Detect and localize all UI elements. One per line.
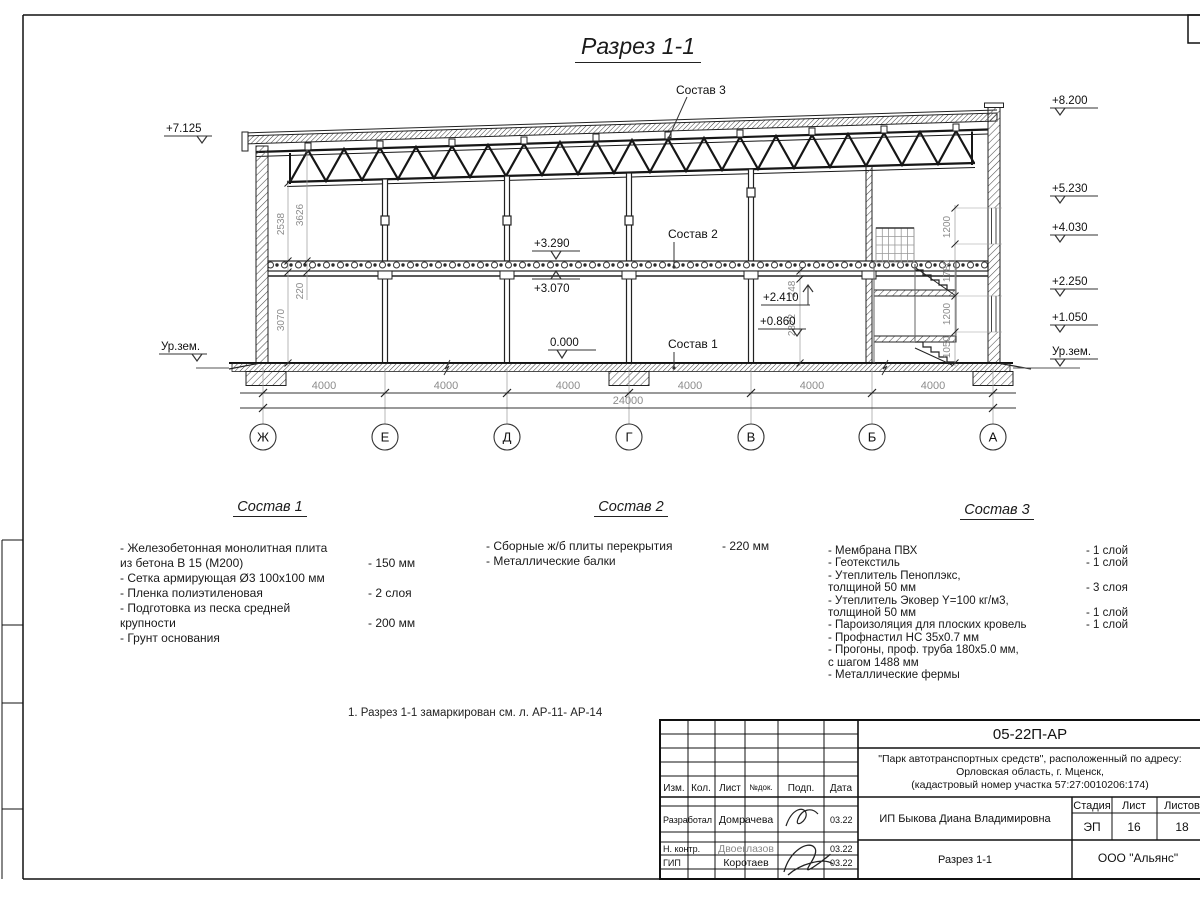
elev-slab-bottom: +3.070 bbox=[532, 271, 580, 295]
span-dim: 4000 bbox=[921, 380, 945, 392]
list-item: - Железобетонная монолитная плита из бет… bbox=[120, 541, 430, 571]
elev-right-1: +5.230 bbox=[1050, 183, 1098, 203]
elev-right-2: +4.030 bbox=[1050, 222, 1098, 242]
list-item: - Пленка полиэтиленовая- 2 слоя bbox=[120, 586, 430, 601]
tb-stage-value: ЭП bbox=[1083, 820, 1100, 834]
svg-text:+0.860: +0.860 bbox=[760, 316, 796, 328]
total-dim: 24000 bbox=[613, 395, 644, 407]
elev-right-3: +2.250 bbox=[1050, 276, 1098, 296]
drawing-sheet: 4000 4000 4000 4000 4000 4000 24000 Ж Е … bbox=[0, 0, 1200, 900]
list-item: - Прогоны, проф. труба 180х5.0 мм, с шаг… bbox=[828, 644, 1148, 669]
section-drawing-canvas: 4000 4000 4000 4000 4000 4000 24000 Ж Е … bbox=[0, 0, 1200, 900]
svg-text:+5.230: +5.230 bbox=[1052, 183, 1088, 195]
vdim: 3070 bbox=[276, 308, 287, 331]
list-item: - Грунт основания bbox=[120, 631, 430, 646]
window-lower bbox=[989, 296, 1000, 332]
tb-role: Н. контр. bbox=[663, 844, 700, 854]
vdim: 1780 bbox=[942, 259, 953, 282]
tb-project-line3: (кадастровый номер участка 57:27:0010206… bbox=[911, 779, 1148, 791]
svg-text:+3.070: +3.070 bbox=[534, 283, 570, 295]
tb-sheet-value: 16 bbox=[1127, 820, 1141, 834]
tb-company: ООО "Альянс" bbox=[1098, 851, 1178, 865]
elev-left-top: +7.125 bbox=[164, 123, 212, 143]
vdim: 220 bbox=[295, 282, 306, 299]
tb-project-line1: "Парк автотранспортных средств", располо… bbox=[878, 753, 1181, 765]
composition2-title-wrap: Состав 2 bbox=[486, 498, 776, 517]
leader-sostav1: Состав 1 bbox=[668, 337, 718, 351]
tb-sheet-label: Лист bbox=[1122, 800, 1146, 812]
list-item: - Пароизоляция для плоских кровель- 1 сл… bbox=[828, 619, 1148, 631]
splice-plate bbox=[381, 216, 389, 225]
title-block: Изм. Кол. Лист №док. Подп. Дата Разработ… bbox=[660, 720, 1200, 879]
svg-text:+2.250: +2.250 bbox=[1052, 276, 1088, 288]
tb-stage-label: Стадия bbox=[1073, 800, 1111, 812]
span-dim: 4000 bbox=[556, 380, 580, 392]
vdim: 2538 bbox=[276, 212, 287, 235]
tb-header-kol: Кол. bbox=[691, 783, 711, 794]
vdim: 1200 bbox=[942, 302, 953, 325]
right-wall bbox=[985, 103, 1004, 363]
axis-label: В bbox=[747, 430, 756, 445]
vdim: 1050 bbox=[942, 335, 953, 358]
tb-role: ГИП bbox=[663, 858, 681, 868]
tb-name: Домрачева bbox=[719, 814, 774, 826]
vdim: 1200 bbox=[942, 215, 953, 238]
list-item: - Металлические балки bbox=[486, 554, 786, 569]
tb-header-izm: Изм. bbox=[663, 783, 684, 794]
tb-sheet-title: Разрез 1-1 bbox=[938, 854, 992, 866]
axis-label: Д bbox=[503, 430, 512, 445]
frame-corner-box bbox=[1188, 15, 1200, 43]
window-upper bbox=[989, 208, 1000, 244]
tb-date: 03.22 bbox=[830, 815, 853, 825]
axis-bubbles: Ж Е Д Г В Б А bbox=[250, 424, 1006, 450]
splice-plate bbox=[625, 216, 633, 225]
span-dim: 4000 bbox=[434, 380, 458, 392]
list-item: - Сборные ж/б плиты перекрытия- 220 мм bbox=[486, 539, 786, 554]
splice-plate bbox=[747, 188, 755, 197]
elev-ground-right: Ур.зем. bbox=[1050, 346, 1098, 366]
page-title-wrap: Разрез 1-1 bbox=[538, 33, 738, 63]
splice-plate bbox=[503, 216, 511, 225]
tb-header-ndok: №док. bbox=[749, 783, 772, 792]
elev-right-top: +8.200 bbox=[1050, 95, 1098, 115]
page-title: Разрез 1-1 bbox=[575, 33, 701, 63]
leader-sostav3: Состав 3 bbox=[676, 83, 726, 97]
composition1-title-wrap: Состав 1 bbox=[120, 498, 420, 517]
tb-header-data: Дата bbox=[830, 783, 853, 794]
list-item: - Геотекстиль- 1 слой bbox=[828, 557, 1148, 569]
tb-name: Двоеглазов bbox=[718, 843, 774, 855]
composition3-list: - Мембрана ПВХ- 1 слой - Геотекстиль- 1 … bbox=[828, 545, 1148, 681]
svg-text:+1.050: +1.050 bbox=[1052, 312, 1088, 324]
composition2-title: Состав 2 bbox=[594, 499, 667, 517]
composition1-list: - Железобетонная монолитная плита из бет… bbox=[120, 541, 430, 646]
span-dim: 4000 bbox=[678, 380, 702, 392]
svg-text:+4.030: +4.030 bbox=[1052, 222, 1088, 234]
stair-railing bbox=[876, 228, 914, 262]
drawing-note: 1. Разрез 1-1 замаркирован см. л. АР-11-… bbox=[348, 707, 602, 719]
axis-label: Г bbox=[625, 430, 632, 445]
svg-text:+2.410: +2.410 bbox=[763, 292, 799, 304]
tb-header-podp: Подп. bbox=[788, 783, 815, 794]
composition1-title: Состав 1 bbox=[233, 499, 306, 517]
svg-text:Ур.зем.: Ур.зем. bbox=[161, 341, 200, 353]
svg-text:0.000: 0.000 bbox=[550, 337, 579, 349]
tb-client: ИП Быкова Диана Владимировна bbox=[879, 813, 1051, 825]
elev-ground-left: Ур.зем. bbox=[159, 341, 207, 361]
list-item: - Металлические фермы bbox=[828, 669, 1148, 681]
left-wall bbox=[256, 146, 268, 363]
tb-project-line2: Орловская область, г. Мценск, bbox=[956, 766, 1104, 778]
elev-right-4: +1.050 bbox=[1050, 312, 1098, 332]
svg-text:Ур.зем.: Ур.зем. bbox=[1052, 346, 1091, 358]
list-item: - Утеплитель Пеноплэкс, толщиной 50 мм- … bbox=[828, 570, 1148, 595]
tb-sheets-label: Листов bbox=[1164, 800, 1200, 812]
footing bbox=[246, 372, 286, 386]
axis-label: А bbox=[989, 430, 998, 445]
tb-name: Коротаев bbox=[723, 857, 769, 869]
composition3-title: Состав 3 bbox=[960, 502, 1033, 520]
axis-label: Ж bbox=[257, 430, 269, 445]
list-item: - Подготовка из песка средней крупности-… bbox=[120, 601, 430, 631]
elev-stair-lower: +0.860 bbox=[758, 316, 806, 336]
elev-floor-zero: 0.000 bbox=[548, 337, 596, 358]
svg-text:+7.125: +7.125 bbox=[166, 123, 202, 135]
floor-slab bbox=[268, 261, 988, 279]
tb-date: 03.22 bbox=[830, 844, 853, 854]
axis-label: Е bbox=[381, 430, 390, 445]
span-dim: 4000 bbox=[312, 380, 336, 392]
tb-header-list: Лист bbox=[719, 783, 741, 794]
span-dim: 4000 bbox=[800, 380, 824, 392]
list-item: - Профнастил НС 35х0.7 мм bbox=[828, 632, 1148, 644]
composition3-title-wrap: Состав 3 bbox=[842, 501, 1152, 520]
svg-text:+3.290: +3.290 bbox=[534, 238, 570, 250]
tb-sheets-value: 18 bbox=[1175, 820, 1189, 834]
vdim: 3626 bbox=[295, 203, 306, 226]
list-item: - Утеплитель Эковер Y=100 кг/м3, толщино… bbox=[828, 595, 1148, 620]
svg-text:+8.200: +8.200 bbox=[1052, 95, 1088, 107]
list-item: - Мембрана ПВХ- 1 слой bbox=[828, 545, 1148, 557]
leader-sostav2: Состав 2 bbox=[668, 227, 718, 241]
tb-doc-code: 05-22П-АР bbox=[993, 726, 1067, 743]
tb-date: 03.22 bbox=[830, 858, 853, 868]
tb-role: Разработал bbox=[663, 815, 712, 825]
list-item: - Сетка армирующая Ø3 100х100 мм bbox=[120, 571, 430, 586]
elev-slab-top: +3.290 bbox=[532, 238, 580, 259]
composition2-list: - Сборные ж/б плиты перекрытия- 220 мм -… bbox=[486, 539, 786, 569]
axis-label: Б bbox=[868, 430, 877, 445]
